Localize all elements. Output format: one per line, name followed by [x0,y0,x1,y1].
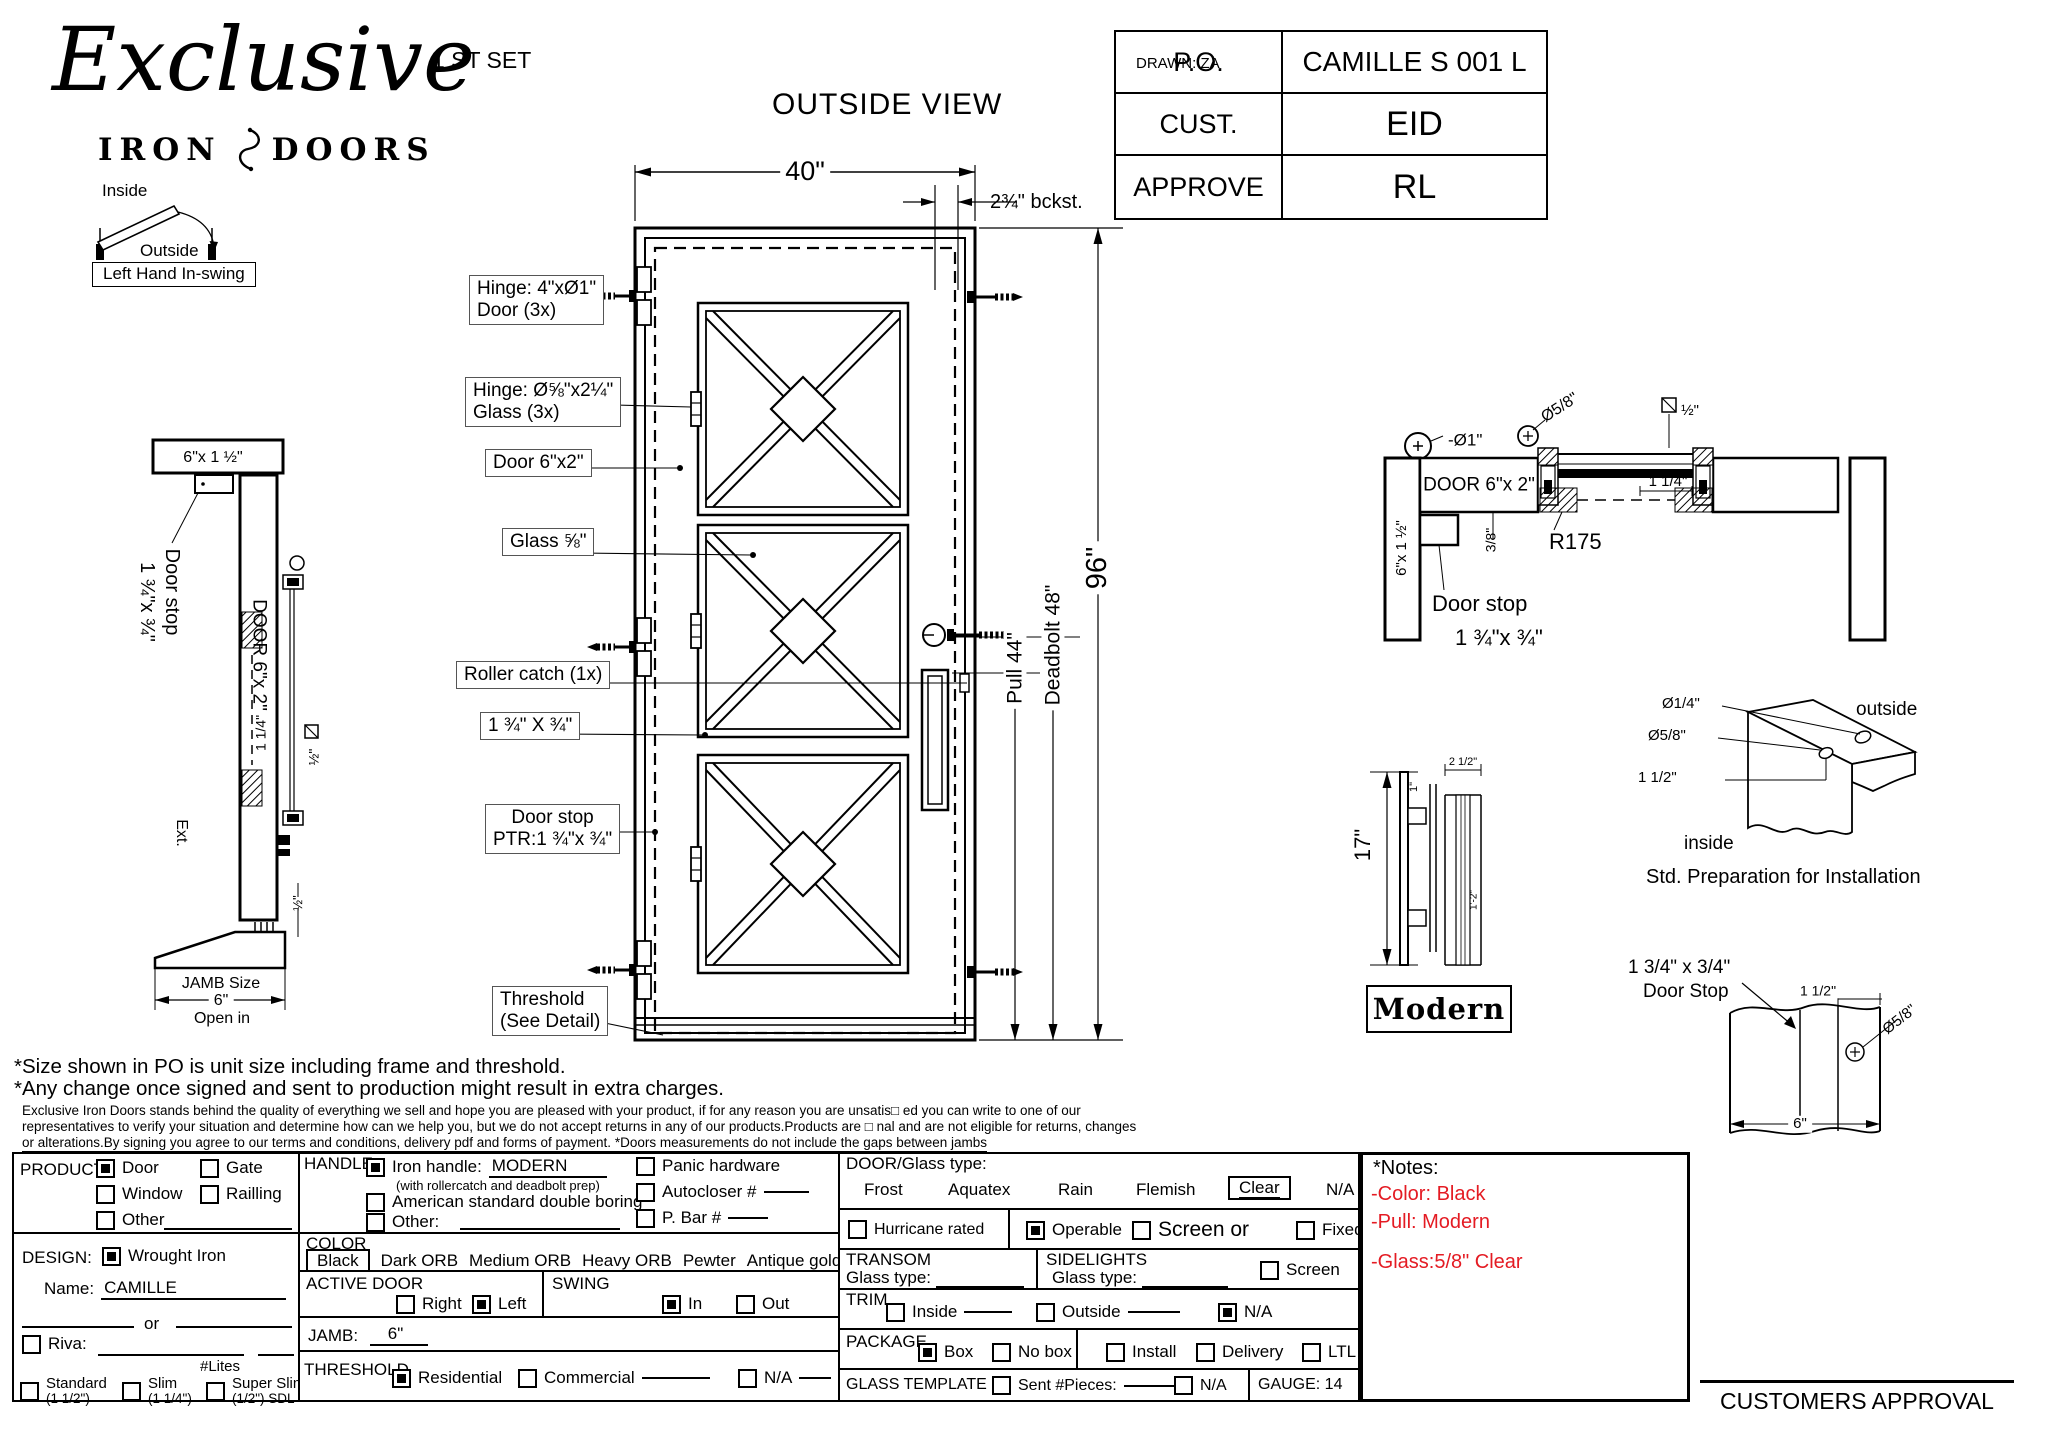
checkbox[interactable] [736,1295,755,1314]
checkbox[interactable] [1106,1343,1125,1362]
design-or-label: or [144,1314,159,1334]
callout-roller-catch: Roller catch (1x) [456,661,610,689]
rs-jamb-dim: 6"x 1 ½" [1394,520,1411,576]
checkbox-sidelights-screen[interactable]: Screen [1260,1260,1340,1280]
jamb-label: JAMB: [308,1326,358,1346]
handle-side-width-dim: 1" [1408,782,1420,792]
approval-signature-line[interactable] [1700,1380,2014,1383]
rs-door-label: DOOR 6"x 2" [1423,476,1535,497]
logo-exclusive: Exclusive [52,16,475,104]
checkbox-product-door[interactable]: Door [96,1158,159,1178]
glass-option-clear-selected[interactable]: Clear [1228,1176,1291,1200]
package-label: PACKAGE [846,1332,927,1352]
drawing-sheet: Exclusive IRON DOORS 1 ST SET OUTSIDE VI… [0,0,2048,1448]
trim-section: TRIM Inside Outside N/A [838,1288,1360,1330]
handle-iron-value[interactable]: MODERN [489,1156,607,1178]
glass-template-section: GLASS TEMPLATE Sent #Pieces: N/A [838,1368,1250,1402]
checkbox-design-standard[interactable]: Standard(1 1/2") [20,1376,107,1407]
checkbox[interactable] [1196,1343,1215,1362]
checkbox-product-gate[interactable]: Gate [200,1158,263,1178]
checkbox[interactable] [200,1159,219,1178]
prep-hole-small-dim: Ø1/4" [1662,696,1700,713]
checkbox-panic-hardware[interactable]: Panic hardware [636,1156,780,1176]
checkbox[interactable] [206,1382,225,1401]
left-door-vertical-label: DOOR 6"x 2" [248,599,269,711]
callout-threshold: Threshold (See Detail) [492,986,608,1036]
left-door-stop-label: Door stop [161,549,183,636]
disclaimer-line-1: *Size shown in PO is unit size including… [14,1056,566,1079]
checkbox[interactable] [392,1369,411,1388]
checkbox-product-window[interactable]: Window [96,1184,182,1204]
checkbox[interactable] [20,1382,39,1401]
approve-value: RL [1283,156,1546,218]
checkbox[interactable] [1296,1221,1315,1240]
note-glass: -Glass:5/8" Clear [1371,1251,1523,1273]
door-glass-label: DOOR/Glass type: [846,1154,987,1174]
rs-gap-dim: 3/8" [1483,528,1498,552]
checkbox[interactable] [96,1185,115,1204]
glass-option-rain[interactable]: Rain [1058,1180,1093,1200]
logo-subtitle: IRON DOORS [98,126,436,174]
checkbox-package-box[interactable]: Box [918,1342,973,1362]
checkbox-product-railling[interactable]: Railling [200,1184,282,1204]
jamb-section: JAMB: 6" [298,1316,840,1352]
color-option[interactable]: Pewter [683,1251,736,1271]
callout-glass: Glass ⅝" [502,528,594,556]
checkbox[interactable] [22,1335,41,1354]
stop-title-2: Door Stop [1643,982,1729,1003]
checkbox[interactable] [366,1158,385,1177]
handle-name-box: Modern [1366,985,1512,1033]
stop-dim-top: 1 1/2" [1795,983,1841,998]
sidelights-section: SIDELIGHTS Glass type: Screen [1036,1248,1360,1290]
pull-handle [922,670,948,810]
checkbox-design-slim[interactable]: Slim(1 1/4") [122,1376,192,1407]
checkbox[interactable] [200,1185,219,1204]
notes-box: *Notes: -Color: Black -Pull: Modern -Gla… [1360,1152,1690,1402]
checkbox-pbar[interactable]: P. Bar # [636,1208,768,1228]
checkbox[interactable] [636,1157,655,1176]
po-value: CAMILLE S 001 L [1283,32,1546,94]
checkbox[interactable] [636,1183,655,1202]
color-option[interactable]: Dark ORB [381,1251,458,1271]
checkbox-handle-american[interactable]: American standard double boring [366,1192,642,1212]
glass-option-na[interactable]: N/A [1326,1180,1354,1200]
swing-label: SWING [552,1274,610,1294]
design-lites-label: #Lites [200,1358,240,1375]
prep-caption: Std. Preparation for Installation [1646,866,1921,888]
gauge-section: GAUGE: 14 [1248,1368,1360,1402]
product-label: PRODUCT: [20,1160,107,1180]
pull-dim: Pull 44" [1003,627,1026,709]
scroll-ornament-icon [234,126,260,174]
checkbox[interactable] [96,1159,115,1178]
checkbox[interactable] [992,1376,1011,1395]
checkbox-swing-out[interactable]: Out [736,1294,789,1314]
checkbox[interactable] [1218,1303,1237,1322]
checkbox[interactable] [886,1303,905,1322]
checkbox-product-other[interactable]: Other [96,1210,165,1230]
door-width-dim: 40" [780,157,830,187]
glass-template-label: GLASS TEMPLATE [846,1376,987,1394]
stop-title-1: 1 3/4" x 3/4" [1628,958,1730,979]
left-top-jamb-dim: 6"x 1 ½" [183,449,242,467]
prep-inside-label: inside [1684,834,1734,855]
panel-bottom [691,755,908,973]
prep-outside-label: outside [1856,700,1917,721]
open-in-label: Open in [194,1010,250,1028]
rs-door-stop-dim: 1 ¾"x ¾" [1455,626,1543,650]
gauge-value: GAUGE: 14 [1258,1376,1342,1394]
checkbox-design-superslim[interactable]: Super Slim(1/2") SDL [206,1376,305,1407]
rs-reveal-dim: 1 1/4" [1649,474,1688,491]
deadbolt-dim: Deadbolt 48" [1041,580,1064,711]
sidelights-glass-type: Glass type: [1052,1268,1137,1288]
design-section: DESIGN: Wrought Iron Name:CAMILLE or Riv… [12,1232,300,1402]
checkbox-install[interactable]: Install [1106,1342,1176,1362]
handle-label: HANDLE [304,1154,373,1174]
checkbox-trim-outside[interactable]: Outside [1036,1302,1180,1322]
checkbox-threshold-residential[interactable]: Residential [392,1368,502,1388]
po-label: P.O. [1116,32,1283,94]
color-option[interactable]: Medium ORB [469,1251,571,1271]
checkbox[interactable] [848,1220,867,1239]
checkbox-fixed[interactable]: Fixed [1296,1220,1364,1240]
prep-offset-dim: 1 1/2" [1638,770,1677,787]
callout-crossbar: 1 ¾" X ¾" [480,712,580,740]
checkbox[interactable] [1026,1221,1045,1240]
checkbox[interactable] [122,1382,141,1401]
callout-hinge-glass: Hinge: Ø⅝"x2¼" Glass (3x) [465,377,621,427]
cust-value: EID [1283,94,1546,156]
door-height-dim: 96" [1082,542,1114,595]
handle-inner-height-dim: 1'-2" [1469,890,1480,910]
checkbox[interactable] [918,1343,937,1362]
rs-radius: R175 [1549,530,1602,554]
logo-doors: DOORS [272,132,436,168]
checkbox[interactable] [1036,1303,1055,1322]
view-title: OUTSIDE VIEW [772,88,1002,121]
checkbox-trim-na[interactable]: N/A [1218,1302,1272,1322]
glass-option-frost[interactable]: Frost [864,1180,903,1200]
active-door-section: ACTIVE DOOR Right Left [298,1270,544,1318]
prep-hole-large-dim: Ø5/8" [1648,728,1686,745]
title-block: P.O. CAMILLE S 001 L CUST. EID APPROVE R… [1114,30,1548,220]
rs-glass-half: ½" [1681,403,1699,420]
left-glass-half-dim: ½" [306,749,321,766]
checkbox[interactable] [738,1369,757,1388]
disclaimer-line-4: representatives to verify your situation… [22,1120,1136,1135]
left-door-stop-dim: 1 ¾"x ¾" [136,562,158,642]
disclaimer-line-3: Exclusive Iron Doors stands behind the q… [22,1104,1081,1119]
design-label: DESIGN: [22,1248,92,1268]
checkbox-design-riva[interactable]: Riva: [22,1334,87,1354]
product-other-line [164,1228,292,1230]
jamb-value[interactable]: 6" [370,1324,428,1346]
glass-option-aquatex[interactable]: Aquatex [948,1180,1010,1200]
checkbox[interactable] [1132,1221,1151,1240]
trim-label: TRIM [846,1290,888,1310]
checkbox-threshold-commercial[interactable]: Commercial [518,1368,710,1388]
door-glass-section: DOOR/Glass type: Frost Aquatex Rain Flem… [838,1152,1360,1210]
checkbox-design-wrought-iron[interactable]: Wrought Iron [102,1246,226,1266]
disclaimer-line-5: or alterations.By signing you agree to o… [22,1136,987,1152]
checkbox[interactable] [472,1295,491,1314]
transom-label: TRANSOM [846,1250,931,1270]
handle-section: HANDLE Iron handle:MODERN (with rollerca… [298,1152,840,1234]
notes-title: *Notes: [1373,1157,1439,1179]
sidelights-label: SIDELIGHTS [1046,1250,1147,1270]
product-section: PRODUCT: Door Gate Window Railling Other [12,1152,300,1234]
hurricane-section: Hurricane rated [838,1208,1010,1250]
shipping-section: Install Delivery LTL [1076,1328,1360,1370]
checkbox[interactable] [102,1247,121,1266]
checkbox-ltl[interactable]: LTL [1302,1342,1356,1362]
design-name-row: Name:CAMILLE [44,1278,286,1300]
checkbox[interactable] [96,1211,115,1230]
left-reveal-dim: 1 1/4" [253,715,268,751]
handle-height-dim: 17" [1351,829,1375,861]
checkbox-hurricane[interactable]: Hurricane rated [848,1220,984,1239]
callout-door-frame: Door 6"x2" [485,449,592,477]
color-section: COLOR Black Dark ORB Medium ORB Heavy OR… [298,1232,840,1272]
checkbox[interactable] [366,1193,385,1212]
jamb-size-label: JAMB Size [182,975,260,993]
disclaimer-line-2: *Any change once signed and sent to prod… [14,1078,724,1101]
checkbox[interactable] [396,1295,415,1314]
checkbox-delivery[interactable]: Delivery [1196,1342,1283,1362]
swing-inside-label: Inside [102,182,147,201]
operable-section: Operable Screen or Fixed [1008,1208,1360,1250]
approval-label: CUSTOMERS APPROVAL [1700,1388,2014,1415]
checkbox-trim-inside[interactable]: Inside [886,1302,1012,1322]
stop-dim-bottom: 6" [1788,1116,1812,1133]
set-label: 1 ST SET [432,48,531,73]
backset-dim: 2¾" bckst. [990,191,1083,213]
callout-door-stop: Door stop PTR:1 ¾"x ¾" [485,804,620,854]
checkbox-package-nobox[interactable]: No box [992,1342,1072,1362]
checkbox-swing-in[interactable]: In [662,1294,702,1314]
active-door-label: ACTIVE DOOR [306,1274,423,1294]
swing-section: SWING In Out [542,1270,840,1318]
swing-outside-label: Outside [140,242,199,261]
checkbox[interactable] [518,1369,537,1388]
checkbox-glass-template-sent[interactable]: Sent #Pieces: [992,1376,1176,1395]
checkbox-threshold-na[interactable]: N/A [738,1368,831,1388]
package-section: PACKAGE Box No box [838,1328,1078,1370]
left-bottom-half-dim: ½" [291,895,305,910]
handle-top-width-dim: 2 1/2" [1449,756,1477,768]
threshold-section: THRESHOLD Residential Commercial N/A [298,1350,840,1402]
checkbox-screen-or[interactable]: Screen or [1132,1218,1249,1242]
checkbox[interactable] [366,1213,385,1232]
checkbox-glass-template-na[interactable]: N/A [1174,1376,1227,1395]
transom-section: TRANSOM Glass type: [838,1248,1038,1290]
left-ext-label: Ext. [172,819,190,847]
checkbox-autocloser[interactable]: Autocloser # [636,1182,809,1202]
checkbox[interactable] [1174,1376,1193,1395]
checkbox-active-left[interactable]: Left [472,1294,526,1314]
transom-glass-type: Glass type: [846,1268,931,1288]
checkbox[interactable] [1302,1343,1321,1362]
design-name-value[interactable]: CAMILLE [101,1278,286,1300]
color-option[interactable]: Heavy ORB [582,1251,672,1271]
checkbox-handle-iron[interactable]: Iron handle:MODERN [366,1156,607,1178]
checkbox[interactable] [636,1209,655,1228]
swing-caption: Left Hand In-swing [92,262,256,287]
panel-middle [691,525,908,737]
panel-top [691,303,908,515]
checkbox[interactable] [992,1343,1011,1362]
rs-hinge-dia: -Ø1" [1448,432,1482,451]
note-pull: -Pull: Modern [1371,1211,1490,1233]
jamb-size-value: 6" [209,992,234,1010]
logo-iron: IRON [98,132,222,168]
rs-door-stop-label: Door stop [1432,592,1527,616]
checkbox-operable[interactable]: Operable [1026,1220,1122,1240]
handle-iron-note: (with rollercatch and deadbolt prep) [396,1178,600,1193]
checkbox[interactable] [1260,1261,1279,1280]
note-color: -Color: Black [1371,1183,1485,1205]
color-option[interactable]: Antique gold [747,1251,842,1271]
left-jamb-section [100,435,340,1030]
checkbox-handle-other[interactable]: Other: [366,1212,439,1232]
glass-option-flemish[interactable]: Flemish [1136,1180,1196,1200]
checkbox-active-right[interactable]: Right [396,1294,462,1314]
callout-hinge-door: Hinge: 4"xØ1" Door (3x) [469,275,604,325]
checkbox[interactable] [662,1295,681,1314]
